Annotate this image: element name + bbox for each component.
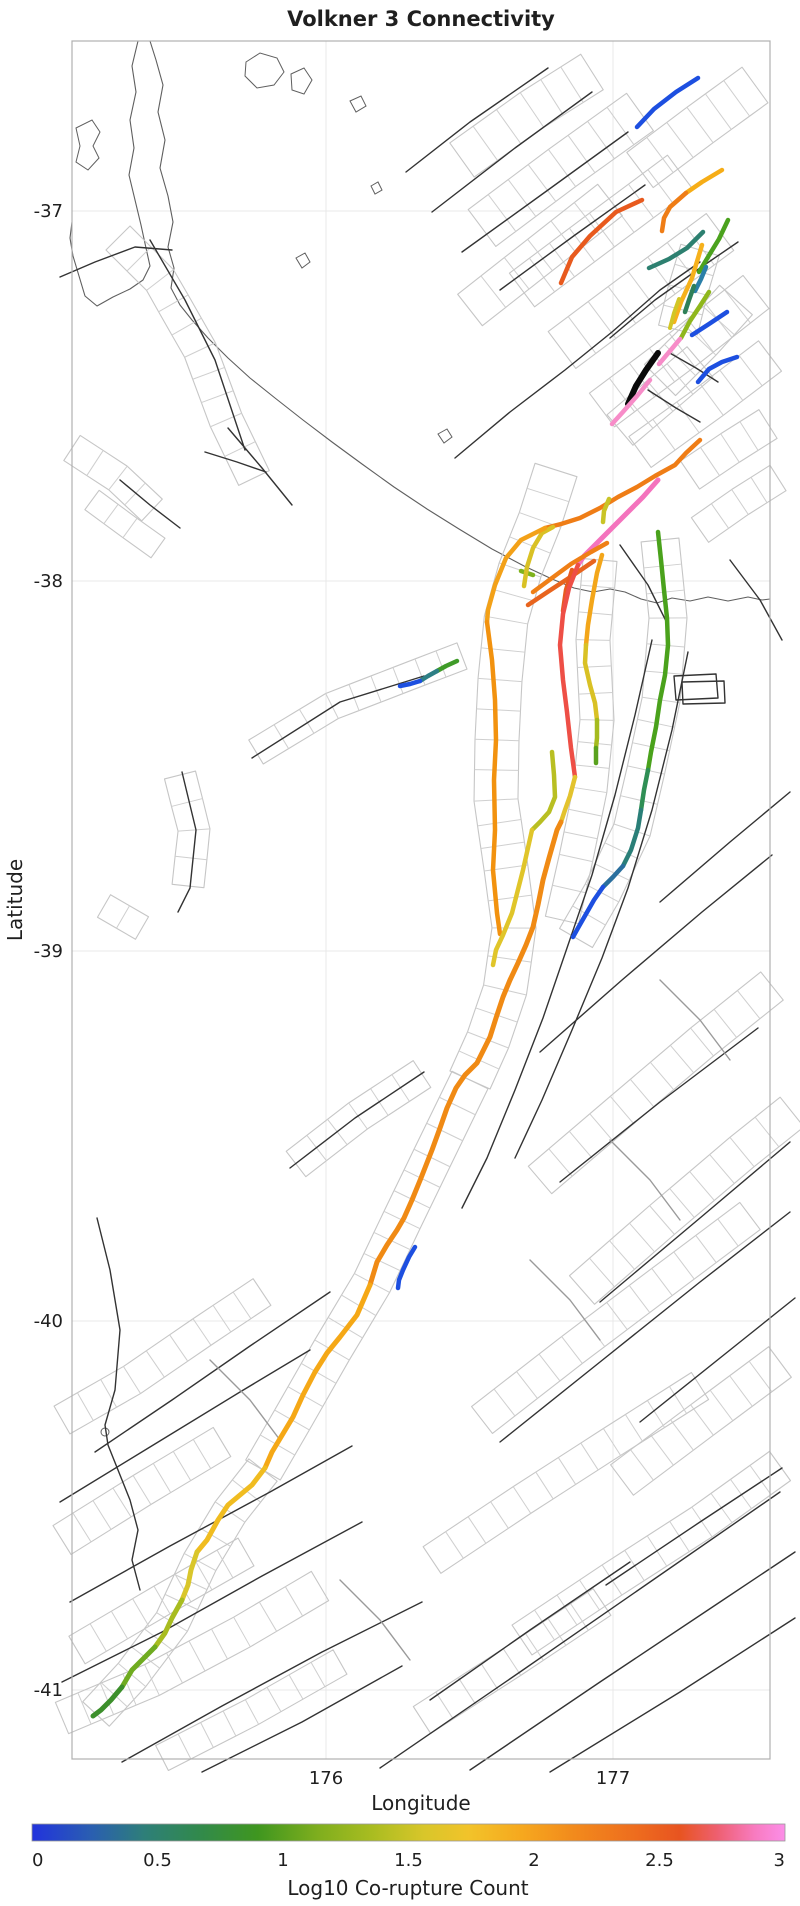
fault-band-rung (145, 1665, 160, 1696)
fault-band-rung (527, 488, 569, 501)
fault-band-rung (481, 276, 506, 307)
corupture-trace-lime-inner (532, 752, 555, 830)
fault-band-rung (562, 1337, 583, 1364)
coastline (150, 41, 770, 603)
fault-band-rung (223, 1711, 236, 1736)
fault-band-rung (652, 1268, 672, 1295)
fault-band-rung (488, 195, 516, 232)
fault-band-rung (696, 1235, 716, 1262)
fault-band-rung (173, 1451, 190, 1480)
x-tick-label: 177 (596, 1768, 630, 1789)
fault-band-rung (193, 1319, 211, 1345)
y-tick-label: -39 (34, 941, 63, 962)
fault-band-rung (564, 832, 597, 839)
fault-band-outline (450, 54, 603, 177)
fault-band-rung (575, 765, 609, 768)
fault-band-rung (620, 796, 657, 805)
fault-band-rung (77, 1393, 93, 1421)
fault-band-rung (751, 477, 767, 502)
fault-band-outline (83, 1459, 277, 1726)
fault-band-rung (669, 1387, 686, 1414)
fault-band-rung (78, 1693, 91, 1724)
fault-band-rung (93, 1501, 111, 1530)
fault-band-rung (549, 1149, 572, 1176)
corupture-trace-blue-south (398, 1247, 415, 1288)
fault-band-rung (170, 1335, 188, 1361)
fault-band-rung (705, 94, 731, 130)
fault-band-rung (714, 1009, 736, 1037)
fault-band-rung (133, 1599, 149, 1627)
fault-band-rung (153, 1463, 170, 1492)
fault-trace (730, 560, 782, 640)
fault-band-rung (446, 1532, 464, 1559)
fault-band-rung (749, 1361, 772, 1391)
fault-band (680, 410, 777, 489)
fault-band-rung (730, 1376, 753, 1406)
colorbar-tick-label: 0.5 (143, 1850, 172, 1871)
fault-band-rung (721, 434, 740, 462)
fault-band-rung (569, 1131, 592, 1158)
fault-band (55, 1571, 328, 1733)
fault-trace (682, 681, 725, 704)
fault-band (64, 435, 162, 520)
fault-band-rung (87, 450, 103, 475)
fault-band (611, 1347, 792, 1495)
fault-band-rung (548, 149, 575, 186)
fault-trace (150, 240, 245, 450)
fault-band-rung (529, 258, 554, 292)
island-outline (291, 68, 312, 94)
fault-band (509, 155, 692, 307)
fault-band-outline (246, 1071, 488, 1480)
corupture-trace-seg-blue-mid (400, 681, 420, 686)
corupture-trace-eastlong-green (648, 532, 668, 770)
island-outline (371, 182, 382, 194)
fault-band-rung (478, 678, 522, 681)
fault-band-rung (178, 1734, 191, 1759)
fault-band-rung (193, 1439, 210, 1468)
corupture-trace-amber-arc-ne (686, 170, 722, 193)
fault-band-rung (629, 1285, 649, 1312)
island-outline (76, 120, 100, 170)
fault-band-rung (109, 466, 127, 490)
corupture-trace-orange-diag-3 (528, 561, 594, 605)
fault-band-rung (625, 1415, 642, 1442)
corupture-trace-east-amber (586, 555, 602, 645)
coastline (70, 41, 150, 306)
fault-band-rung (503, 1649, 521, 1676)
fault-band-rung (458, 1678, 475, 1705)
corupture-trace-main-deepgreen-7 (93, 1687, 122, 1716)
fault-trace (640, 1298, 795, 1422)
fault-band-outline (423, 1373, 708, 1574)
fault-band (246, 1071, 488, 1480)
fault-band-rung (588, 121, 615, 158)
fault-band-rung (326, 693, 339, 718)
fault-band (691, 465, 786, 542)
fault-trace (178, 772, 196, 912)
fault-band-rung (201, 1723, 214, 1748)
corupture-trace-east-yellow (585, 645, 597, 720)
fault-band-rung (539, 1354, 560, 1381)
fault-band-rung (607, 1302, 627, 1329)
y-tick-label: -37 (34, 201, 63, 222)
colored-trace-layer (93, 78, 737, 1716)
map-plot: -37-38-39-40-41176177 00.511.522.53 Volk… (0, 0, 800, 1906)
corupture-trace-east-chartreuse (596, 720, 597, 748)
colorbar-tick-label: 0 (32, 1850, 43, 1871)
colorbar-layer: 00.511.522.53 (32, 1824, 785, 1871)
fault-trace (62, 1522, 362, 1682)
fault-band-rung (175, 856, 207, 859)
fault-band-rung (492, 589, 534, 601)
fault-band-rung (737, 991, 759, 1019)
fault-band-rung (513, 1487, 531, 1514)
fault-trace (228, 428, 292, 505)
fault-band-rung (311, 1662, 325, 1686)
fault-band-rung (701, 385, 724, 416)
fault-band-rung (494, 1389, 515, 1416)
fault-trace (380, 1492, 780, 1768)
fault-trace (210, 1360, 280, 1440)
fault-band-rung (755, 1117, 779, 1147)
fault-band-rung (491, 1502, 509, 1529)
fault-band-rung (561, 67, 583, 102)
corupture-trace-main-yellow-4 (182, 1552, 197, 1600)
fault-band-rung (724, 81, 750, 117)
fault-band-rung (687, 107, 713, 142)
fault-band-rung (731, 1479, 752, 1508)
fault-trace (406, 68, 548, 172)
fault-band (450, 54, 603, 177)
y-tick-label: -40 (34, 1311, 63, 1332)
fault-band-rung (558, 1458, 575, 1485)
fault-band-rung (677, 402, 699, 433)
fault-band-outline (569, 1097, 800, 1304)
x-axis-label: Longitude (371, 1791, 470, 1815)
fault-band-rung (670, 1045, 693, 1072)
fault-band-rung (171, 799, 202, 807)
fault-band-rung (718, 1219, 738, 1246)
corupture-trace-red-south (560, 565, 578, 777)
fault-band-rung (579, 692, 613, 694)
fault-band-rung (123, 518, 137, 537)
fault-band-rung (536, 1472, 553, 1499)
fault-band-outline (680, 410, 777, 489)
corupture-trace-orange-west-loop (487, 622, 500, 934)
fault-band-rung (520, 93, 544, 128)
fault-band-rung (630, 1079, 653, 1106)
fault-band-rung (569, 809, 602, 816)
x-tick-label: 176 (309, 1768, 343, 1789)
coastline-layer (70, 41, 770, 1436)
fault-band (106, 226, 269, 485)
colorbar-tick-label: 3 (774, 1850, 785, 1871)
fault-band-rung (111, 1611, 127, 1639)
fault-band-rung (104, 504, 118, 523)
fault-band-outline (691, 465, 786, 542)
fault-band-rung (90, 1624, 106, 1652)
fault-band-rung (590, 1114, 613, 1141)
tick-label-layer: -37-38-39-40-41176177 (34, 201, 631, 1789)
colorbar-tick-label: 1 (277, 1850, 288, 1871)
fault-band-rung (573, 787, 607, 792)
fault-band-rung (427, 1123, 463, 1141)
fault-trace (340, 1580, 410, 1660)
colorbar-tick-label: 2 (528, 1850, 539, 1871)
fault-band-outline (450, 463, 577, 1089)
fault-band (249, 643, 467, 764)
fault-band-rung (671, 1420, 694, 1450)
fault-band-rung (653, 419, 675, 450)
fault-band (85, 490, 165, 557)
fault-band-rung (650, 1062, 673, 1089)
fault-band-rung (116, 906, 129, 929)
fault-band-outline (528, 972, 783, 1194)
fault-band-rung (484, 616, 527, 624)
fault-band-rung (690, 1172, 715, 1201)
y-tick-label: -41 (34, 1680, 63, 1701)
fault-trace (660, 980, 730, 1060)
fault-band-rung (113, 1488, 131, 1517)
fault-band-rung (725, 290, 751, 323)
fault-band-rung (732, 490, 749, 515)
fault-band-rung (517, 1372, 538, 1399)
fault-band-rung (526, 1634, 544, 1661)
fault-band-layer (53, 54, 800, 1770)
fault-band-rung (123, 1366, 140, 1393)
fault-band-rung (233, 1292, 251, 1319)
fault-band-rung (629, 1223, 654, 1252)
fault-trace (530, 1260, 600, 1340)
fault-band-outline (54, 1279, 271, 1434)
fault-band-rung (607, 107, 634, 144)
fault-band-rung (631, 1450, 654, 1480)
fault-band-rung (259, 1602, 276, 1631)
island-outline (350, 96, 366, 112)
fault-band-rung (73, 1513, 91, 1542)
fault-band-rung (133, 1476, 151, 1505)
fault-band-outline (55, 1571, 328, 1733)
fault-band-rung (127, 247, 151, 271)
fault-band-rung (700, 447, 719, 475)
fault-band-rung (581, 1443, 598, 1470)
fault-band (83, 1459, 277, 1726)
fault-band-rung (468, 1517, 486, 1544)
fault-band (450, 463, 577, 1089)
fault-band-rung (589, 1258, 614, 1287)
fault-band-rung (481, 842, 525, 848)
corupture-trace-main-orange-2 (265, 1285, 370, 1468)
fault-band-rung (559, 854, 592, 861)
colorbar-tick-label: 1.5 (394, 1850, 423, 1871)
fault-band-rung (189, 1641, 205, 1671)
fault-band-rung (481, 648, 525, 652)
fault-band-rung (154, 1586, 170, 1614)
island-outline (245, 53, 284, 88)
fault-trace (550, 1618, 795, 1772)
corupture-trace-pink-upper (659, 339, 680, 364)
fault-band-rung (740, 422, 758, 451)
fault-band-rung (577, 666, 611, 668)
fault-band-rung (610, 1096, 633, 1123)
fault-band (164, 771, 209, 888)
fault-band-rung (393, 667, 403, 693)
fault-band-outline (509, 155, 692, 307)
fault-band-rung (267, 1687, 281, 1711)
figure-title: Volkner 3 Connectivity (287, 7, 555, 31)
fault-band (54, 1279, 271, 1434)
fault-trace (515, 652, 688, 1158)
fault-band-rung (667, 122, 693, 157)
fault-band-rung (603, 1429, 620, 1456)
fault-band-rung (576, 640, 610, 641)
fault-band-rung (212, 1629, 228, 1659)
fault-trace (60, 1350, 310, 1502)
fault-band (156, 1650, 347, 1771)
figure-volkner-connectivity: -37-38-39-40-41176177 00.511.522.53 Volk… (0, 0, 800, 1906)
fault-band-rung (167, 1653, 183, 1683)
fault-trace (202, 1666, 402, 1772)
fault-band-rung (478, 819, 522, 825)
fault-trace (500, 1212, 790, 1442)
corupture-trace-eastlong-teal (623, 810, 641, 866)
fault-trace (560, 1028, 758, 1182)
fault-band-rung (172, 318, 202, 335)
fault-band-rung (299, 709, 313, 733)
island-outline (296, 253, 310, 268)
fault-band-rung (739, 356, 762, 386)
fault-band-outline (64, 435, 162, 520)
fault-band (413, 1589, 611, 1734)
fault-trace (290, 1072, 424, 1168)
fault-band-rung (371, 676, 381, 702)
fault-band-rung (541, 80, 563, 115)
fault-band-rung (234, 1617, 251, 1647)
y-axis-label: Latitude (3, 859, 27, 941)
fault-band-rung (568, 135, 595, 172)
fault-band (423, 1373, 708, 1574)
y-tick-label: -38 (34, 571, 63, 592)
fault-band-rung (750, 1465, 771, 1494)
fault-band (53, 1427, 231, 1554)
fault-band-outline (249, 643, 467, 764)
fault-band-outline (413, 1589, 611, 1734)
corupture-trace-orange-arc-ne (662, 193, 686, 231)
fault-band-rung (578, 612, 612, 615)
fault-band-outline (611, 1347, 792, 1495)
island-outline (438, 429, 452, 443)
fault-band-rung (730, 1137, 754, 1166)
fault-band-rung (710, 1155, 735, 1184)
fault-band-rung (581, 585, 615, 588)
fault-band-rung (496, 110, 520, 144)
corupture-trace-blue-low-ne (698, 357, 737, 382)
fault-band-rung (213, 1305, 231, 1332)
fault-band (528, 972, 783, 1194)
fault-band-rung (528, 165, 556, 202)
colorbar-bar (32, 1824, 785, 1841)
fault-band-rung (650, 1206, 675, 1235)
fault-band-rung (692, 1507, 712, 1537)
colorbar-tick-label: 2.5 (645, 1850, 674, 1871)
fault-band-rung (711, 504, 728, 529)
fault-band-rung (667, 364, 693, 394)
fault-band-rung (146, 1351, 164, 1377)
fault-band-rung (178, 829, 210, 831)
fault-trace (470, 1552, 795, 1770)
fault-trace (606, 1468, 782, 1585)
fault-band-rung (436, 1692, 453, 1719)
fault-band (458, 184, 623, 325)
fault-band-rung (710, 1390, 733, 1420)
fault-band-rung (608, 287, 636, 324)
corupture-trace-olive-curve (603, 499, 609, 522)
fault-band (97, 895, 148, 940)
fault-band-rung (477, 709, 521, 711)
colorbar-label: Log10 Co-rupture Count (287, 1876, 528, 1900)
fault-band-rung (245, 1700, 258, 1725)
corupture-trace-eastlong-blue (573, 887, 603, 937)
fault-band-rung (674, 1252, 694, 1279)
fault-band-rung (473, 126, 497, 160)
fault-band-rung (670, 1189, 695, 1218)
fault-band-rung (651, 1435, 674, 1465)
fault-band-outline (53, 1427, 231, 1554)
fault-band-rung (285, 1587, 302, 1616)
fault-trace (610, 1140, 680, 1220)
fault-band-outline (85, 490, 165, 557)
corupture-trace-blue-ne (637, 78, 698, 127)
corupture-trace-eastlong-seagreen (641, 770, 648, 810)
fault-band-rung (289, 1675, 303, 1699)
fault-band-rung (481, 1663, 498, 1690)
fault-band (569, 1097, 800, 1304)
fault-band-rung (720, 370, 743, 400)
fault-trace (462, 640, 652, 1208)
